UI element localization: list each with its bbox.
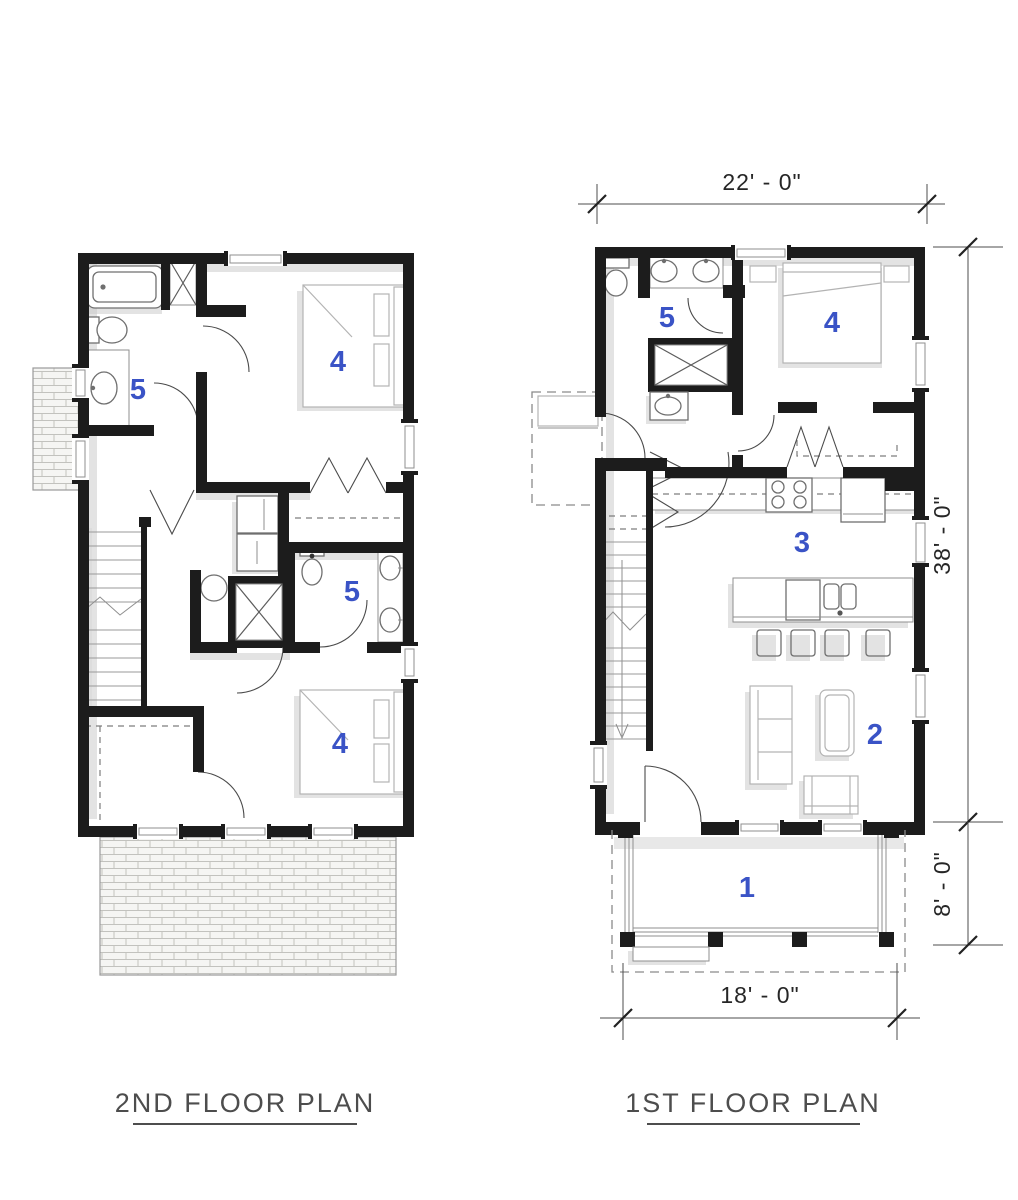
shower-stall: [648, 338, 734, 392]
first-floor-title: 1ST FLOOR PLAN: [625, 1088, 881, 1118]
pedestal-sink: [201, 575, 227, 601]
room-label-kitchen: 3: [794, 527, 810, 559]
shower-stall: [170, 261, 196, 305]
bed: [297, 285, 407, 411]
room-label-bath: 5: [659, 302, 675, 334]
double-vanity: [378, 545, 403, 642]
room-label-bedroom: 4: [332, 728, 348, 760]
dimension-label-top: 22' - 0": [722, 169, 801, 195]
armchair: [799, 776, 858, 819]
porch-roof-hatch: [100, 837, 396, 975]
dimension-label-right-upper: 38' - 0": [929, 495, 955, 574]
kitchen-island: [728, 578, 913, 628]
coffee-table: [815, 690, 854, 761]
toilet: [604, 258, 629, 296]
bed: [294, 690, 405, 798]
bathroom-vanity: [87, 350, 129, 432]
shower-stall: [228, 576, 290, 648]
double-sink-counter: [650, 255, 723, 288]
floor-plan-sheet: 5 4 5 4: [0, 0, 1018, 1200]
room-label-bedroom: 4: [824, 307, 840, 339]
refrigerator: [841, 478, 885, 522]
room-label-living: 2: [867, 719, 883, 751]
toilet: [302, 559, 322, 585]
dimension-label-right-lower: 8' - 0": [929, 851, 955, 917]
room-label-bedroom: 4: [330, 346, 346, 378]
bathroom-vanity: [646, 392, 688, 424]
sofa: [745, 686, 792, 790]
second-floor-title: 2ND FLOOR PLAN: [115, 1088, 376, 1118]
dimension-label-bottom: 18' - 0": [720, 982, 799, 1008]
bathtub: [82, 266, 163, 314]
washer-dryer-stack: [232, 496, 278, 574]
room-label-bath: 5: [130, 374, 146, 406]
porch-steps: [628, 947, 709, 965]
room-label-bath: 5: [344, 576, 360, 608]
room-label-porch: 1: [739, 872, 755, 904]
toilet: [88, 317, 127, 343]
floor-plan-drawing: 5 4 5 4: [0, 0, 1018, 1200]
